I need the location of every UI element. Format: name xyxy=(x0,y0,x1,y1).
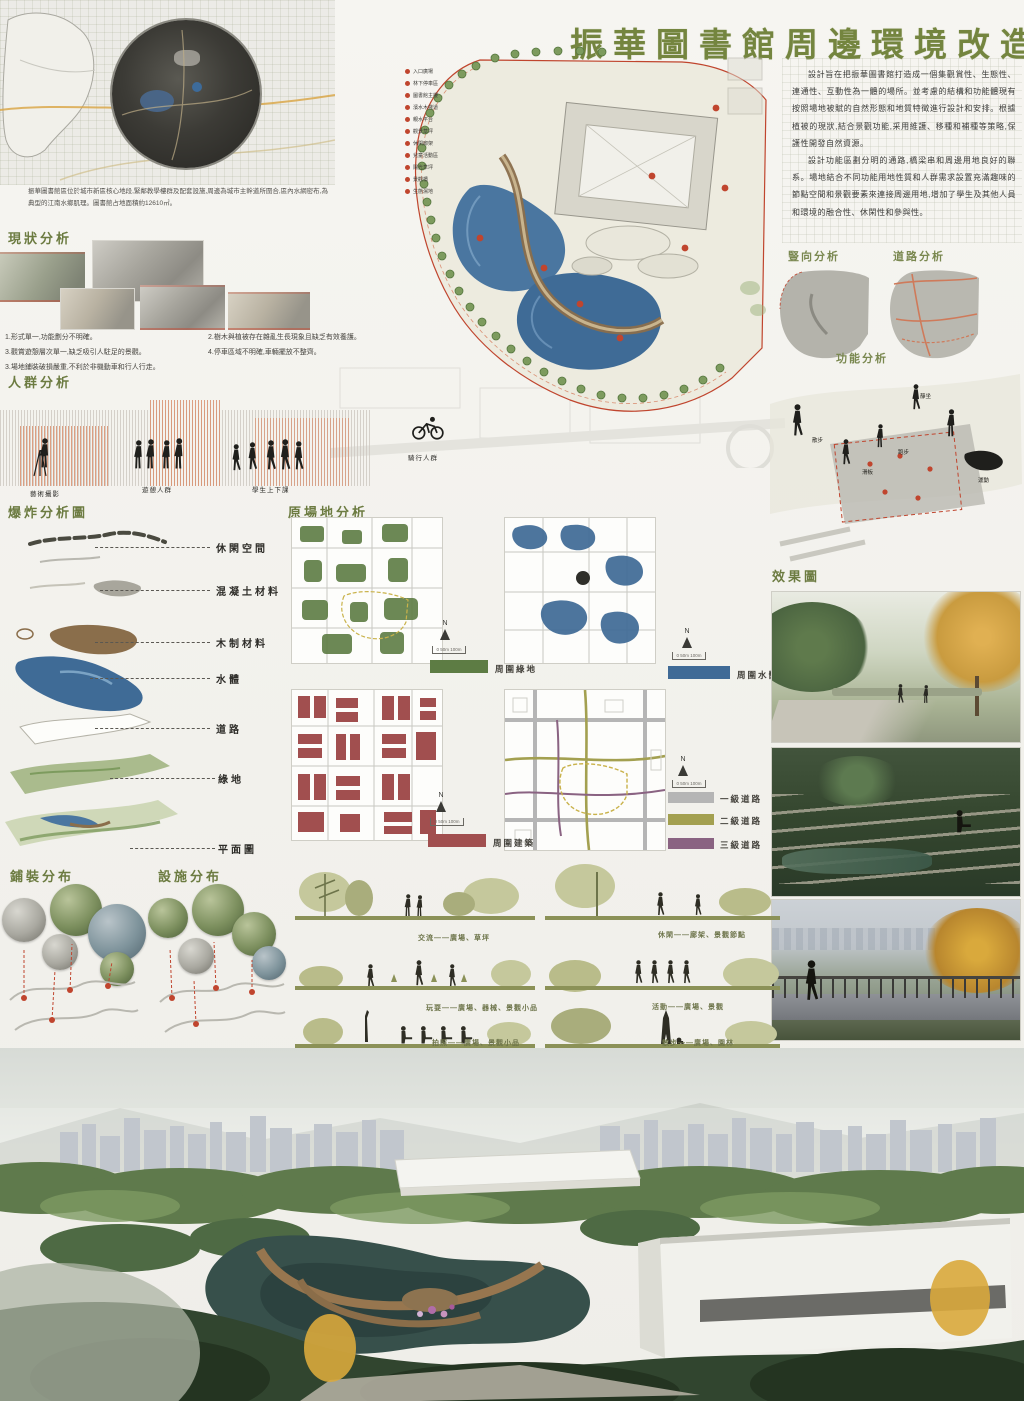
activity-label: 靜坐 xyxy=(920,392,931,400)
exploded-label: 休閑空間 xyxy=(216,540,268,555)
vertical-analysis-map xyxy=(772,264,877,364)
plan-key-item: 生態濕地 xyxy=(405,186,438,197)
key-marker-icon xyxy=(405,177,410,182)
vertical-analysis-header: 豎向分析 xyxy=(788,248,840,264)
section-caption: 交流——廣場、草坪 xyxy=(418,933,490,943)
section-caption: 散步——廣場、園林 xyxy=(662,1038,734,1048)
road-analysis-header: 道路分析 xyxy=(893,248,945,264)
plan-key-item: 休閑廊架 xyxy=(405,138,438,149)
scale-bar: 0 50m 100m xyxy=(672,780,706,788)
status-analysis-header: 現狀分析 xyxy=(8,228,72,247)
render-boardwalk xyxy=(772,900,1020,1040)
section-strip xyxy=(295,862,535,930)
status-notes-left: 1.形式單一,功能劃分不明確。 3.觀賞遊憩層次單一,缺乏吸引人駐足的景觀。 3… xyxy=(5,330,205,375)
exploded-label: 綠地 xyxy=(218,771,244,786)
leader-line xyxy=(130,848,215,849)
legend-swatch-road2 xyxy=(668,814,714,825)
function-analysis-diagram: 散步 滑板 跑步 靜坐 運動 xyxy=(770,364,1022,569)
plan-key-item: 親水平台 xyxy=(405,114,438,125)
water-body-map xyxy=(505,518,655,663)
road-map xyxy=(505,690,665,850)
leader-line xyxy=(90,678,210,679)
site-photo xyxy=(228,292,310,330)
section-strip xyxy=(545,862,780,930)
legend-label-road1: 一級道路 xyxy=(720,793,762,805)
facility-distribution-header: 設施分布 xyxy=(158,866,222,885)
exploded-layers xyxy=(0,522,205,882)
location-caption: 振華圖書館區位於城市新區核心地段,緊鄰教學樓群及配套設施,周邊為城市主幹道所圍合… xyxy=(28,186,328,211)
leader-line xyxy=(100,590,210,591)
activity-label: 運動 xyxy=(978,476,989,484)
intro-paragraph-1: 設計旨在把振華圖書館打造成一個集觀賞性、生態性、連通性、互動性為一體的場所。並考… xyxy=(792,66,1016,152)
cyclist-icon xyxy=(405,412,451,452)
plan-key-item: 兒童活動區 xyxy=(405,150,438,161)
exploded-label: 水體 xyxy=(216,671,242,686)
key-marker-icon xyxy=(405,93,410,98)
leader-line xyxy=(110,778,215,779)
green-space-map xyxy=(292,518,442,663)
distribution-maps xyxy=(0,940,290,1050)
exploded-label: 道路 xyxy=(216,721,242,736)
paving-distribution-header: 鋪裝分布 xyxy=(10,866,74,885)
leader-line xyxy=(95,642,210,643)
key-marker-icon xyxy=(405,165,410,170)
legend-label-building: 周圍建築 xyxy=(493,837,535,849)
site-photo xyxy=(140,285,225,330)
poster-board: 振華圖書館區位於城市新區核心地段,緊鄰教學樓群及配套設施,周邊為城市主幹道所圍合… xyxy=(0,0,1024,1401)
tree-trunk xyxy=(975,676,979,716)
status-note: 2.樹木與植被存在雜亂生長現象且缺乏有效養護。 xyxy=(208,330,393,345)
exploded-label: 平面圖 xyxy=(218,841,257,856)
legend-swatch-building xyxy=(428,834,486,847)
section-strip xyxy=(295,948,535,1000)
plan-key-item: 景觀橋 xyxy=(405,174,438,185)
intro-paragraph-2: 設計功能區劃分明的通路,橋梁串和周邊用地良好的聯系。場地結合不同功能用地性質和人… xyxy=(792,152,1016,221)
master-plan xyxy=(330,38,785,468)
people-silhouettes xyxy=(892,680,952,710)
tree-mass xyxy=(812,756,902,806)
section-caption: 拍照——廣場、景觀小品 xyxy=(432,1038,520,1048)
person-sitting xyxy=(950,806,980,840)
plan-key: 入口廣場 林下停車區 圖書館主樓 濱水木棧道 親水平台 觀景草坪 休閑廊架 兒童… xyxy=(405,66,438,197)
key-marker-icon xyxy=(405,153,410,158)
north-arrow-icon xyxy=(440,629,450,640)
plan-key-item: 圖書館主樓 xyxy=(405,90,438,101)
north-arrow-icon xyxy=(678,765,688,776)
person-silhouette xyxy=(800,958,820,1004)
crowd-label-photography: 藝術攝影 xyxy=(30,488,60,498)
legend-swatch-road1 xyxy=(668,792,714,803)
section-strip xyxy=(545,948,780,1000)
plan-key-item: 林下停車區 xyxy=(405,78,438,89)
status-note: 1.形式單一,功能劃分不明確。 xyxy=(5,330,205,345)
activity-label: 跑步 xyxy=(898,448,909,456)
legend-label-road2: 二級道路 xyxy=(720,815,762,827)
legend-label-road3: 三級道路 xyxy=(720,839,762,851)
function-axon-map xyxy=(770,364,1022,569)
key-marker-icon xyxy=(405,189,410,194)
activity-label: 散步 xyxy=(812,436,823,444)
key-marker-icon xyxy=(405,141,410,146)
crowd-analysis-header: 人群分析 xyxy=(8,372,72,391)
key-marker-icon xyxy=(405,105,410,110)
leader-line xyxy=(95,547,210,548)
render-header: 效果圖 xyxy=(772,566,820,585)
crowd-activity-chart: 藝術攝影 遊憩人群 學生上下課 xyxy=(0,392,372,504)
water-surface xyxy=(782,848,932,874)
plan-key-item: 入口廣場 xyxy=(405,66,438,77)
location-map xyxy=(0,0,335,185)
activity-label: 滑板 xyxy=(862,468,873,476)
exploded-label: 木制材料 xyxy=(216,635,268,650)
crowd-label-students: 學生上下課 xyxy=(252,484,290,494)
site-photo xyxy=(60,288,135,330)
plan-key-item: 濱水木棧道 xyxy=(405,102,438,113)
inset-roads xyxy=(112,20,260,168)
satellite-inset-circle xyxy=(112,20,260,168)
north-arrow: N xyxy=(436,792,446,812)
key-marker-icon xyxy=(405,69,410,74)
north-arrow-icon xyxy=(682,637,692,648)
intro-text: 設計旨在把振華圖書館打造成一個集觀賞性、生態性、連通性、互動性為一體的場所。並考… xyxy=(792,66,1016,221)
legend-swatch-green xyxy=(430,660,488,673)
key-marker-icon xyxy=(405,129,410,134)
section-caption: 休閑——廊架、景觀節點 xyxy=(658,930,746,940)
paving-photo-circle xyxy=(2,898,46,942)
crowd-silhouettes xyxy=(24,432,354,482)
exploded-analysis-header: 爆炸分析圖 xyxy=(8,502,88,521)
fallen-leaves-ground xyxy=(772,1020,1020,1040)
scale-bar: 0 50m 100m xyxy=(432,646,466,654)
status-note: 4.停車區域不明確,車輛擺放不整齊。 xyxy=(208,345,393,360)
tree-mass xyxy=(772,602,872,692)
north-arrow: N xyxy=(678,756,688,776)
exploded-label: 混凝土材料 xyxy=(216,583,281,598)
facility-photo-circle xyxy=(148,898,188,938)
leader-line xyxy=(95,728,210,729)
north-arrow: N xyxy=(682,628,692,648)
crowd-label-passing: 騎行人群 xyxy=(408,452,438,462)
key-marker-icon xyxy=(405,81,410,86)
render-wetland-terrace xyxy=(772,748,1020,896)
building-map xyxy=(292,690,442,840)
render-park-path xyxy=(772,592,1020,742)
legend-swatch-road3 xyxy=(668,838,714,849)
north-arrow: N xyxy=(440,620,450,640)
plan-key-item: 觀景草坪 xyxy=(405,126,438,137)
key-marker-icon xyxy=(405,117,410,122)
north-arrow-icon xyxy=(436,801,446,812)
status-note: 3.觀賞遊憩層次單一,缺乏吸引人駐足的景觀。 xyxy=(5,345,205,360)
legend-label-green: 周圍綠地 xyxy=(495,663,537,675)
legend-swatch-water xyxy=(668,666,730,679)
scale-bar: 0 50m 100m xyxy=(672,652,706,660)
status-notes-right: 2.樹木與植被存在雜亂生長現象且缺乏有效養護。 4.停車區域不明確,車輛擺放不整… xyxy=(208,330,393,360)
road-analysis-map xyxy=(882,264,992,364)
crowd-label-leisure: 遊憩人群 xyxy=(142,484,172,494)
plan-key-item: 陽光草坪 xyxy=(405,162,438,173)
aerial-rendering xyxy=(0,1048,1024,1401)
scale-bar: 0 50m 100m xyxy=(430,818,464,826)
yellow-tree xyxy=(922,592,1020,692)
